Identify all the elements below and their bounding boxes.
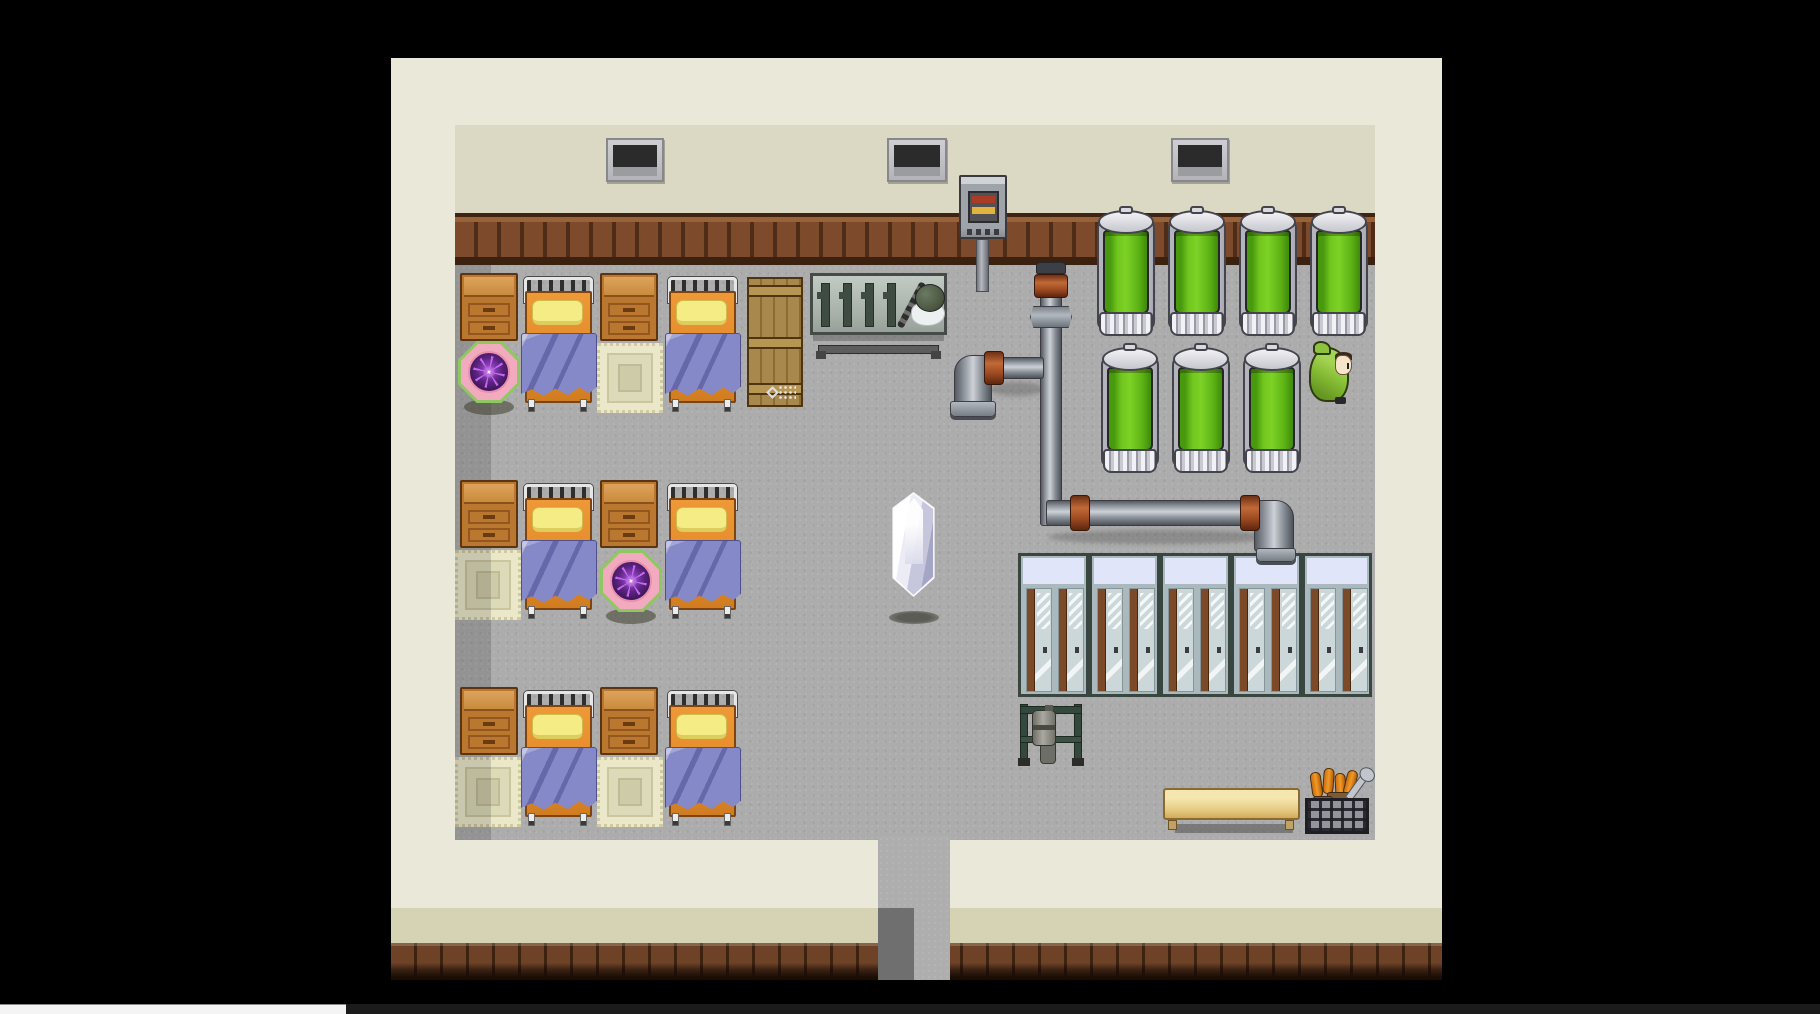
bed-blanket	[521, 747, 597, 811]
tank-base	[1245, 449, 1299, 473]
tank-green-fluid	[1178, 367, 1224, 451]
nightstand	[600, 687, 658, 755]
rack-foot	[1018, 758, 1030, 766]
crate-band	[747, 285, 803, 297]
tool	[865, 283, 874, 327]
culture-tank[interactable]	[1308, 208, 1370, 340]
bed-blanket	[665, 747, 741, 811]
tank-base	[1099, 312, 1153, 336]
panel-screen	[968, 191, 999, 223]
tool-bench	[810, 273, 947, 361]
locker-handle	[1114, 647, 1118, 653]
window-pane	[894, 145, 940, 169]
window-pane	[613, 145, 657, 169]
panel-box	[959, 175, 1007, 239]
npc-foot	[1335, 397, 1346, 404]
locker-door	[1200, 588, 1226, 692]
bed-blanket	[521, 540, 597, 604]
bed[interactable]	[667, 691, 740, 827]
pipe-flange	[950, 401, 996, 417]
pipe-coupling	[984, 351, 1004, 385]
locker-door	[1342, 588, 1368, 692]
bench-seat	[1163, 788, 1300, 820]
wooden-bench	[1163, 788, 1300, 835]
bench-foot	[816, 351, 826, 359]
bed[interactable]	[523, 277, 596, 413]
nightstand-drawer	[468, 321, 510, 335]
orb-web-pattern	[615, 565, 647, 597]
tank-knob	[1190, 206, 1204, 214]
bench-leg	[1168, 820, 1177, 830]
bed-leg	[580, 399, 587, 412]
crystal-shadow	[889, 611, 939, 624]
locker-door	[1168, 588, 1194, 692]
basket-cage	[1305, 798, 1369, 834]
locker[interactable]	[1089, 553, 1160, 697]
game-viewport[interactable]	[0, 0, 1820, 1014]
bed-pillow	[676, 714, 727, 739]
nightstand-drawer	[468, 303, 510, 317]
tank-base	[1312, 312, 1366, 336]
crystal-facet	[905, 498, 923, 564]
bed-pillow	[532, 714, 583, 739]
bed-blanket	[665, 333, 741, 397]
tank-green-fluid	[1316, 230, 1362, 314]
bed-leg	[528, 813, 535, 826]
locker-handle	[1288, 647, 1292, 653]
nightstand-drawer	[608, 528, 650, 542]
npc-hood	[1313, 341, 1331, 355]
culture-tank[interactable]	[1170, 345, 1232, 477]
tank-knob	[1119, 206, 1133, 214]
panel-red-bar	[972, 196, 995, 203]
tank-knob	[1123, 343, 1137, 351]
rug	[597, 343, 663, 413]
orange-scrap	[1309, 771, 1324, 798]
pipe-flange	[1256, 548, 1296, 562]
tank-green-fluid	[1245, 230, 1291, 314]
nightstand-top	[604, 277, 654, 297]
window-pane	[1178, 145, 1222, 169]
crystal-event[interactable]	[885, 492, 942, 597]
locker-handle	[1043, 647, 1047, 653]
helmet-bowl	[915, 284, 945, 312]
rack-cylinder	[1032, 710, 1056, 746]
nightstand-top	[464, 691, 514, 711]
orb-core	[468, 351, 510, 393]
nightstand-drawer	[608, 321, 650, 335]
tank-knob	[1261, 206, 1275, 214]
nightstand-drawer	[608, 717, 650, 731]
culture-tank[interactable]	[1166, 208, 1228, 340]
nightstand-drawer	[468, 510, 510, 524]
nightstand-top	[464, 277, 514, 297]
tank-green-fluid	[1174, 230, 1220, 314]
orange-scrap	[1322, 768, 1335, 795]
bed-leg	[672, 606, 679, 619]
bed-leg	[580, 606, 587, 619]
scrap-basket	[1305, 770, 1373, 836]
nightstand	[600, 273, 658, 341]
panel-buttons	[967, 229, 1002, 235]
bottom-ui-strip	[0, 1004, 1820, 1014]
nightstand-drawer	[608, 510, 650, 524]
locker-door	[1058, 588, 1084, 692]
locker[interactable]	[1231, 553, 1302, 697]
nightstand	[460, 687, 518, 755]
rack-foot	[1072, 758, 1084, 766]
nightstand-top	[464, 484, 514, 504]
locker-door	[1239, 588, 1265, 692]
nightstand	[460, 273, 518, 341]
bench-shadow	[1175, 824, 1293, 833]
pipe-cap	[1036, 262, 1066, 274]
tank-knob	[1194, 343, 1208, 351]
tank-base	[1103, 449, 1157, 473]
bench-shadow	[813, 335, 944, 341]
wall-control-panel[interactable]	[959, 175, 1007, 292]
tank-base	[1241, 312, 1295, 336]
locker-door	[1310, 588, 1336, 692]
bed-pillow	[532, 300, 583, 325]
panel-pole	[976, 239, 989, 292]
rug-border	[607, 353, 653, 403]
bed[interactable]	[667, 277, 740, 413]
orb-web-pattern	[473, 356, 505, 388]
culture-tank[interactable]	[1237, 208, 1299, 340]
nightstand-drawer	[608, 735, 650, 749]
rug-center	[618, 778, 642, 806]
nightstand-drawer	[608, 303, 650, 317]
locker-top-panel	[1094, 558, 1155, 584]
tool	[843, 283, 852, 327]
bed-leg	[724, 606, 731, 619]
save-point-orb[interactable]	[458, 341, 520, 417]
wooden-crate	[747, 277, 803, 407]
bed-leg	[528, 606, 535, 619]
pipe-coupling	[1240, 495, 1260, 531]
bed-leg	[724, 813, 731, 826]
bed-blanket	[521, 333, 597, 397]
pipe-valve-ring	[1034, 274, 1068, 298]
locker-handle	[1217, 647, 1221, 653]
window-sill	[1178, 167, 1222, 176]
doorway-corridor[interactable]	[878, 836, 950, 980]
pipe-elbow	[1254, 500, 1294, 552]
tank-green-fluid	[1249, 367, 1295, 451]
nightstand	[460, 480, 518, 548]
bed-pillow	[676, 507, 727, 532]
culture-tank[interactable]	[1099, 345, 1161, 477]
locker-top-panel	[1023, 558, 1084, 584]
locker-top-panel	[1165, 558, 1226, 584]
nightstand-drawer	[468, 717, 510, 731]
nightstand-top	[604, 691, 654, 711]
locker[interactable]	[1302, 553, 1372, 697]
npc-face	[1335, 355, 1352, 375]
locker-handle	[1359, 647, 1363, 653]
locker-handle	[1185, 647, 1189, 653]
crate-stencil	[778, 385, 796, 399]
locker-door	[1097, 588, 1123, 692]
rug	[597, 757, 663, 827]
tool	[887, 283, 896, 327]
bed-blanket	[665, 540, 741, 604]
locker-handle	[1327, 647, 1331, 653]
bed-leg	[724, 399, 731, 412]
bed-leg	[580, 813, 587, 826]
bench-rail	[818, 345, 939, 354]
locker[interactable]	[1018, 553, 1089, 697]
bed-pillow	[532, 507, 583, 532]
nightstand-top	[604, 484, 654, 504]
tank-base	[1174, 449, 1228, 473]
bench-top	[810, 273, 947, 335]
bed[interactable]	[667, 484, 740, 620]
bed-leg	[528, 399, 535, 412]
locker-handle	[1256, 647, 1260, 653]
npc-eye	[1347, 363, 1349, 369]
locker-door	[1026, 588, 1052, 692]
bed-leg	[672, 813, 679, 826]
tank-green-fluid	[1103, 230, 1149, 314]
window	[1171, 138, 1229, 182]
bed-pillow	[676, 300, 727, 325]
locker[interactable]	[1160, 553, 1231, 697]
tank-knob	[1265, 343, 1279, 351]
pipe-fitting	[1030, 306, 1072, 328]
crate-band	[747, 337, 803, 349]
bed[interactable]	[523, 484, 596, 620]
tank-base	[1170, 312, 1224, 336]
corridor-shadow	[878, 908, 914, 980]
hooded-npc[interactable]	[1309, 341, 1356, 404]
bench-foot	[931, 351, 941, 359]
nightstand-drawer	[468, 528, 510, 542]
window-sill	[894, 167, 940, 176]
locker-handle	[1075, 647, 1079, 653]
culture-tank[interactable]	[1095, 208, 1157, 340]
window	[606, 138, 664, 182]
bed[interactable]	[523, 691, 596, 827]
tank-green-fluid	[1107, 367, 1153, 451]
tank-knob	[1332, 206, 1346, 214]
locker-top-panel	[1307, 558, 1367, 584]
locker-handle	[1146, 647, 1150, 653]
locker-door	[1271, 588, 1297, 692]
save-point-orb[interactable]	[600, 550, 662, 626]
bench-leg	[1285, 820, 1294, 830]
locker-door	[1129, 588, 1155, 692]
culture-tank[interactable]	[1241, 345, 1303, 477]
panel-yellow-bar	[972, 207, 995, 214]
tool-rack	[1018, 700, 1088, 768]
orb-core	[610, 560, 652, 602]
rug-center	[618, 364, 642, 392]
nightstand	[600, 480, 658, 548]
pipe-coupling	[1070, 495, 1090, 531]
bed-leg	[672, 399, 679, 412]
pipe-shadow	[1048, 530, 1274, 544]
bottom-white-strip	[0, 1004, 346, 1014]
window-sill	[613, 167, 657, 176]
rug-border	[607, 767, 653, 817]
nightstand-drawer	[468, 735, 510, 749]
tool	[821, 283, 830, 327]
window	[887, 138, 947, 182]
